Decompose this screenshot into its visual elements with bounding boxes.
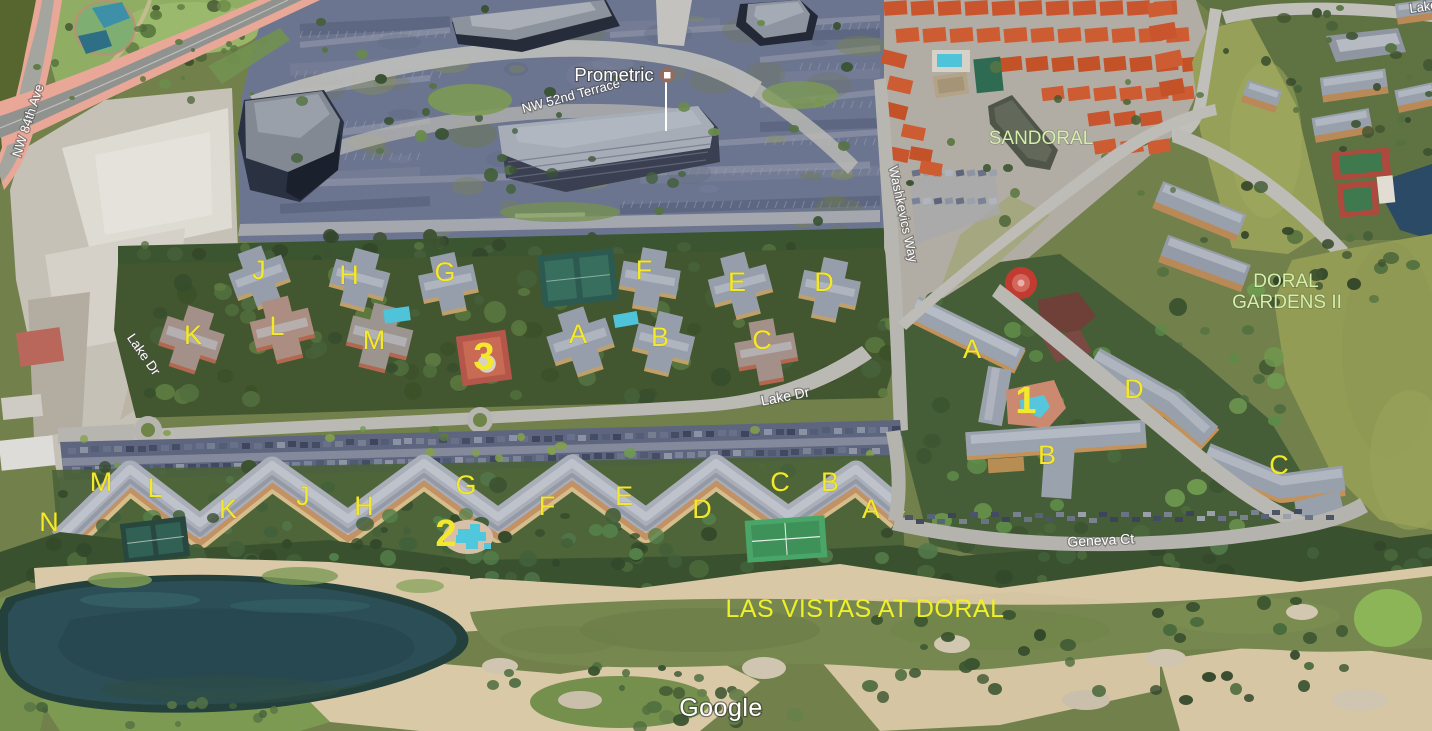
svg-text:J: J — [296, 481, 310, 511]
svg-text:L: L — [147, 473, 162, 503]
svg-text:2: 2 — [435, 513, 456, 555]
svg-text:K: K — [219, 494, 237, 524]
svg-text:H: H — [354, 491, 374, 521]
svg-text:N: N — [39, 507, 59, 537]
svg-text:C: C — [1269, 450, 1289, 480]
svg-text:B: B — [651, 322, 669, 352]
svg-text:GARDENS II: GARDENS II — [1232, 292, 1342, 313]
svg-text:M: M — [363, 325, 386, 355]
svg-text:A: A — [862, 494, 880, 524]
svg-text:SANDORAL: SANDORAL — [989, 128, 1094, 149]
svg-text:B: B — [821, 467, 839, 497]
svg-text:E: E — [615, 481, 633, 511]
svg-text:B: B — [1038, 440, 1056, 470]
svg-text:Prometric: Prometric — [574, 64, 653, 85]
svg-text:C: C — [770, 467, 790, 497]
svg-text:C: C — [752, 325, 772, 355]
svg-text:G: G — [434, 257, 455, 287]
svg-text:L: L — [269, 311, 284, 341]
svg-text:J: J — [252, 255, 266, 285]
svg-text:DORAL: DORAL — [1253, 271, 1318, 292]
svg-text:F: F — [636, 255, 653, 285]
svg-text:M: M — [90, 467, 113, 497]
svg-text:A: A — [569, 319, 587, 349]
svg-text:A: A — [963, 334, 981, 364]
svg-text:D: D — [814, 267, 834, 297]
svg-text:LAS VISTAS AT DORAL: LAS VISTAS AT DORAL — [725, 595, 1004, 623]
svg-text:G: G — [455, 470, 476, 500]
svg-text:1: 1 — [1015, 380, 1036, 422]
svg-text:K: K — [184, 320, 202, 350]
svg-text:Google: Google — [679, 694, 763, 722]
svg-text:D: D — [692, 494, 712, 524]
svg-text:D: D — [1124, 374, 1144, 404]
svg-text:H: H — [339, 260, 359, 290]
svg-text:3: 3 — [473, 336, 494, 378]
svg-text:F: F — [539, 491, 556, 521]
svg-text:E: E — [728, 267, 746, 297]
